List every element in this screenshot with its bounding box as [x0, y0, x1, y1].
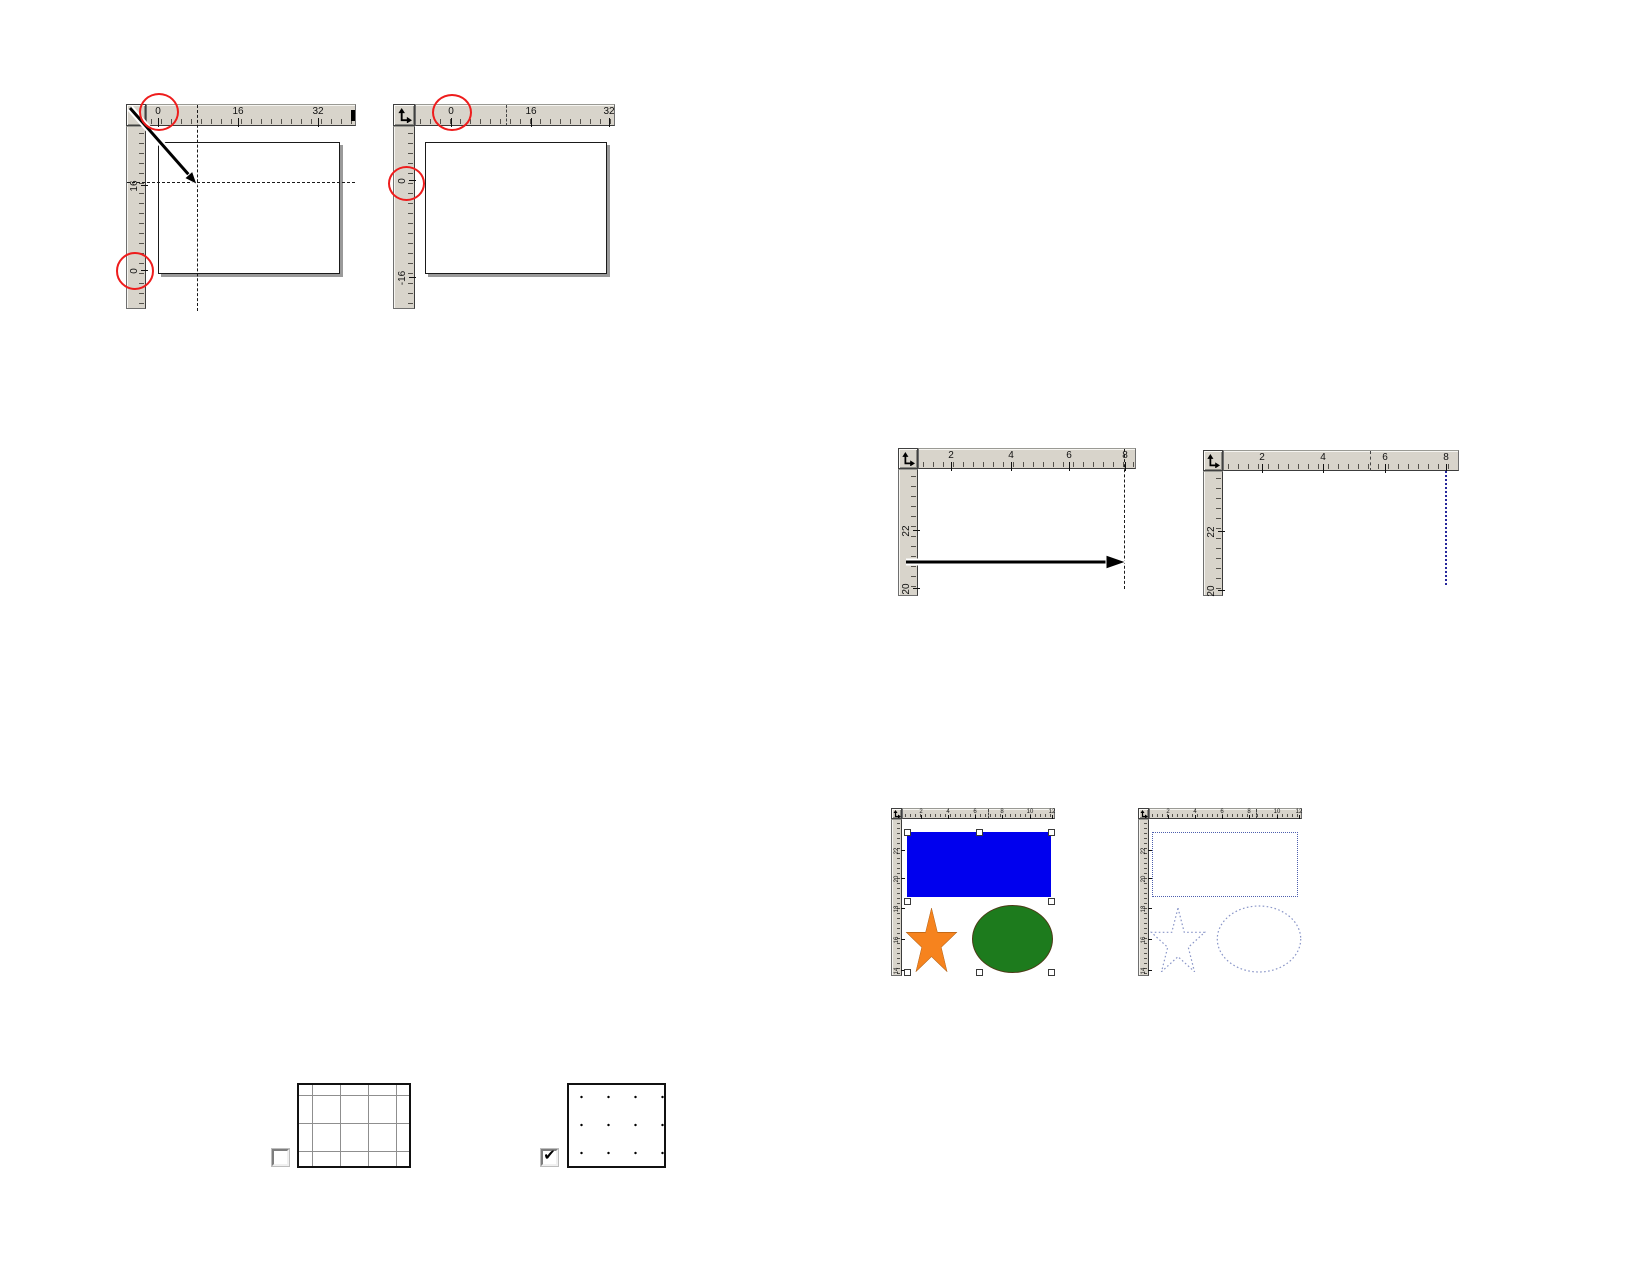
ruler-tick-label: 4 [1002, 450, 1020, 461]
ruler-tick-label: 8 [1437, 452, 1455, 463]
selection-handle[interactable] [1048, 898, 1055, 905]
figure-shapes-wireframe-view: 2 4 6 8 10 12 22 20 18 16 14 [1138, 808, 1304, 976]
ruler-position-marker [1370, 451, 1371, 471]
origin-arrows-icon [1206, 454, 1220, 468]
horizontal-ruler[interactable]: 2 4 6 8 [1223, 450, 1459, 471]
ruler-tick-label: 2 [1253, 452, 1271, 463]
show-grid-as-dots-checkbox-checked[interactable]: ✔ [541, 1149, 558, 1166]
ruler-tick-label: 16 [229, 106, 247, 117]
highlight-circle-v-zero [116, 252, 154, 290]
ruler-tick-label: 8 [1244, 809, 1254, 815]
origin-arrows-icon [397, 108, 412, 123]
ruler-tick-label: 22 [1206, 522, 1218, 542]
ruler-tick-label: 2 [942, 450, 960, 461]
selection-handle[interactable] [904, 969, 911, 976]
highlight-circle-h-zero [139, 93, 179, 131]
ruler-position-marker [506, 105, 507, 126]
ruler-tick-label: 32 [600, 106, 618, 117]
star-shape-wireframe[interactable] [1150, 908, 1206, 972]
ruler-tick-label: 16 [893, 933, 901, 947]
ruler-tick-label: 8 [997, 809, 1007, 815]
ruler-end-marker [351, 110, 355, 121]
star-shape[interactable] [905, 908, 958, 972]
ruler-tick-label: 16 [1140, 933, 1148, 947]
guideline[interactable] [1445, 471, 1447, 585]
selection-handle[interactable] [976, 829, 983, 836]
ruler-tick-label: 18 [1140, 902, 1148, 916]
ruler-tick-label: 32 [309, 106, 327, 117]
origin-arrows-icon [901, 452, 915, 466]
selection-handle[interactable] [1048, 969, 1055, 976]
figure-ruler-origin-moved: 0 16 32 0 -16 [393, 104, 617, 312]
show-grid-as-dots-checkbox-unchecked[interactable] [272, 1149, 289, 1166]
vertical-ruler[interactable]: 22 20 18 16 14 [1138, 819, 1149, 976]
ruler-tick-label: -16 [397, 268, 409, 288]
selection-handle[interactable] [904, 829, 911, 836]
ruler-tick-label: 4 [943, 809, 953, 815]
ruler-origin-button[interactable] [1203, 450, 1223, 471]
ruler-tick-label: 20 [1140, 872, 1148, 886]
origin-arrows-icon [893, 810, 901, 818]
vertical-ruler[interactable]: 0 -16 [393, 126, 415, 309]
rectangle-shape[interactable] [907, 832, 1051, 897]
ellipse-shape-wireframe[interactable] [1216, 905, 1302, 973]
ruler-tick-label: 8 [1116, 450, 1134, 461]
ruler-tick-label: 6 [970, 809, 980, 815]
ruler-tick-label: 16 [522, 106, 540, 117]
ruler-tick-label: 20 [893, 872, 901, 886]
vertical-ruler[interactable]: 22 20 [898, 469, 918, 596]
ruler-tick-label: 22 [893, 844, 901, 858]
ruler-origin-button[interactable] [898, 448, 918, 469]
horizontal-ruler[interactable]: 2 4 6 8 10 12 [1149, 808, 1302, 819]
checkmark-icon: ✔ [543, 1148, 556, 1164]
horizontal-ruler[interactable]: 2 4 6 8 [918, 448, 1136, 469]
highlight-circle-v-zero [388, 166, 425, 201]
ruler-tick-label: 14 [893, 964, 901, 978]
selection-handle[interactable] [904, 898, 911, 905]
ruler-tick-label: 22 [1140, 844, 1148, 858]
ruler-position-marker [1256, 809, 1257, 819]
origin-arrows-icon [1140, 810, 1148, 818]
vertical-ruler[interactable]: 22 20 18 16 14 [891, 819, 902, 976]
ruler-tick-label: 4 [1190, 809, 1200, 815]
ruler-tick-label: 14 [1140, 964, 1148, 978]
ruler-position-marker [988, 809, 989, 819]
vertical-ruler[interactable]: 22 20 [1203, 471, 1223, 596]
ruler-tick-label: 6 [1217, 809, 1227, 815]
selection-handle[interactable] [1048, 829, 1055, 836]
figure-ruler-origin-drag: 0 16 32 16 0 [126, 104, 358, 312]
drag-arrow [904, 551, 1136, 573]
ruler-tick-label: 4 [1314, 452, 1332, 463]
ruler-tick-label: 6 [1060, 450, 1078, 461]
figure-guideline-drag: 2 4 6 8 22 20 [898, 448, 1138, 596]
ruler-origin-button[interactable] [1138, 808, 1149, 819]
ruler-tick-label: 10 [1272, 809, 1282, 815]
ruler-tick-label: 20 [901, 579, 913, 599]
ruler-tick-label: 6 [1376, 452, 1394, 463]
figure-guideline-placed: 2 4 6 8 22 20 [1203, 450, 1459, 596]
ruler-tick-label: 2 [916, 809, 926, 815]
ruler-tick-label: 12 [1047, 809, 1057, 815]
horizontal-ruler[interactable]: 2 4 6 8 10 12 [902, 808, 1055, 819]
figure-shapes-normal-view: 2 4 6 8 10 12 22 20 18 16 14 [891, 808, 1057, 976]
ellipse-shape[interactable] [972, 905, 1053, 973]
ruler-tick-label: 10 [1025, 809, 1035, 815]
manual-page: 0 16 32 16 0 0 16 [0, 0, 1650, 1275]
ruler-origin-button[interactable] [393, 104, 415, 126]
figure-grid-as-lines [255, 1080, 425, 1170]
ruler-origin-button[interactable] [891, 808, 902, 819]
ruler-tick-label: 22 [901, 521, 913, 541]
ruler-tick-label: 18 [893, 902, 901, 916]
figure-grid-as-dots: ✔ [524, 1080, 684, 1170]
ruler-tick-label: 20 [1206, 581, 1218, 601]
highlight-circle-h-zero [432, 94, 472, 131]
drawing-page[interactable] [425, 142, 607, 274]
grid-lines-preview [297, 1083, 411, 1168]
ruler-tick-label: 2 [1163, 809, 1173, 815]
rectangle-shape-wireframe[interactable] [1152, 832, 1298, 897]
ruler-tick-label: 12 [1294, 809, 1304, 815]
grid-dots-preview [567, 1083, 666, 1168]
selection-handle[interactable] [976, 969, 983, 976]
